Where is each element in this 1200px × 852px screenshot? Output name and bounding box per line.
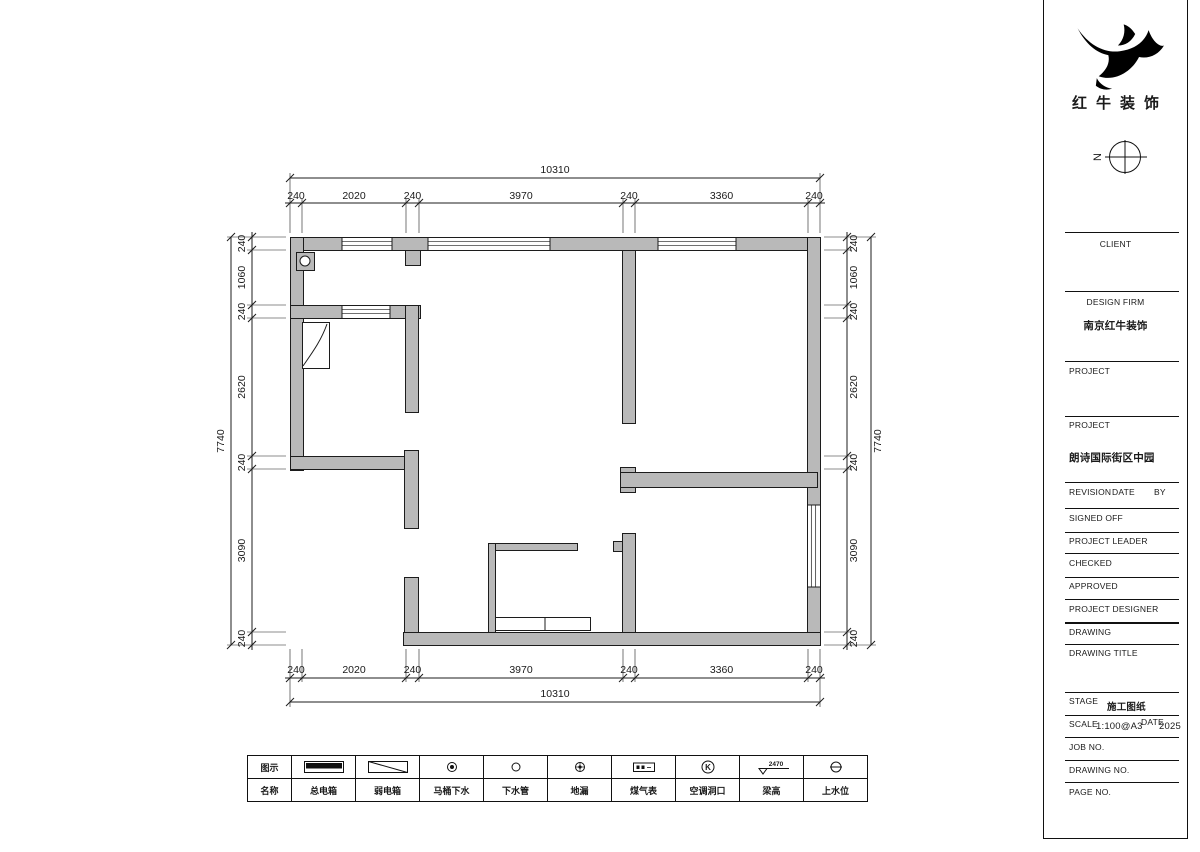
dimension-label: 240 [805,664,823,676]
legend-name-row: 名称 总电箱弱电箱马桶下水下水管地漏煤气表空调洞口梁高上水位 [248,779,867,801]
dimension-label: 240 [287,664,305,676]
legend-header-name: 名称 [248,779,291,801]
dimension-label: 2620 [848,375,860,399]
client-label: CLIENT [1044,239,1187,249]
dimension-label: 240 [848,303,860,321]
dimension-label: 240 [236,235,248,253]
signed-off-label: SIGNED OFF [1069,513,1123,523]
dimension-label: 240 [404,190,422,202]
dimension-label: 240 [848,454,860,472]
project-leader-label: PROJECT LEADER [1069,536,1148,546]
wall [405,451,419,529]
legend-symbol-beam-height-icon: 2470 [739,756,803,779]
window [342,306,390,319]
tb-divider [1065,416,1179,417]
tb-divider [1065,553,1179,554]
dimension-label: 3970 [509,190,533,202]
wall [623,534,636,633]
scale-value: 1:100@A3 [1096,721,1143,732]
dimension-label: 240 [848,235,860,253]
by-label: BY [1154,487,1166,497]
partition-wall [489,544,496,633]
drawing-title-label: DRAWING TITLE [1069,648,1138,658]
dimension-label: 2620 [236,375,248,399]
dimension-label: 3360 [710,190,734,202]
dimension-label: 3090 [848,539,860,563]
drawing-label: DRAWING [1069,627,1111,637]
dimension-label: 240 [236,454,248,472]
svg-text:2470: 2470 [768,761,783,768]
legend-name-floor-drain: 地漏 [547,779,611,801]
dimension-label: 240 [287,190,305,202]
dimension-label: 240 [620,190,638,202]
wall [406,251,421,266]
dimension-label: 7740 [872,429,884,453]
wall [404,633,821,646]
dimension-label: 1060 [236,266,248,290]
wall [406,306,419,413]
revision-label: REVISION [1069,487,1111,497]
wall [623,251,636,424]
tb-divider [1065,532,1179,533]
partition-wall [489,544,578,551]
tb-divider [1065,782,1179,783]
dimension-label: 10310 [540,164,569,176]
design-firm-value: 南京红牛装饰 [1044,318,1187,333]
legend-symbol-low-voltage-box-icon [355,756,419,779]
tb-divider [1065,508,1179,509]
dimension-label: 3360 [710,664,734,676]
legend-symbol-gas-meter-icon [611,756,675,779]
legend-name-beam-height: 梁高 [739,779,803,801]
tb-divider [1065,692,1179,693]
bull-logo-icon [1068,22,1164,92]
legend-table: 图示 K2470 名称 总电箱弱电箱马桶下水下水管地漏煤气表空调洞口梁高上水位 [247,755,868,802]
legend-name-main-power-box: 总电箱 [291,779,355,801]
brand-name: 红牛装饰 [1044,92,1187,113]
north-label: N [1092,153,1104,161]
project-label-1: PROJECT [1069,366,1110,376]
dimension-label: 240 [805,190,823,202]
dimension-label: 240 [236,303,248,321]
approved-label: APPROVED [1069,581,1118,591]
job-no-label: JOB NO. [1069,742,1104,752]
tb-divider [1065,482,1179,483]
legend-name-ac-opening: 空调洞口 [675,779,739,801]
page-no-label: PAGE NO. [1069,787,1111,797]
dimension-label: 3970 [509,664,533,676]
legend-symbol-main-power-box-icon [291,756,355,779]
flue-circle [300,256,310,266]
legend-name-gas-meter: 煤气表 [611,779,675,801]
tb-divider [1065,737,1179,738]
window [658,238,736,251]
date-label: DATE [1112,487,1135,497]
dimension-label: 3090 [236,539,248,563]
counter [496,618,591,631]
legend-symbol-floor-drain-icon [547,756,611,779]
wall [614,542,623,552]
stage-value: 施工图纸 [1107,699,1146,713]
legend-symbol-water-supply-level-icon [803,756,867,779]
wall [621,473,818,488]
legend-name-low-voltage-box: 弱电箱 [355,779,419,801]
tb-divider [1065,232,1179,233]
drawing-sheet: 2402020240397024033602401031024020202403… [0,0,1200,852]
tb-divider [1065,715,1179,716]
tb-divider [1065,577,1179,578]
date-value: 2025 [1159,721,1181,732]
dimension-label: 240 [236,630,248,648]
legend-symbol-drain-pipe-icon [483,756,547,779]
legend-symbol-ac-opening-icon: K [675,756,739,779]
legend-name-toilet-drain: 马桶下水 [419,779,483,801]
dimension-label: 240 [848,630,860,648]
tb-divider [1065,622,1179,624]
dimension-label: 10310 [540,688,569,700]
window [342,238,392,251]
svg-text:K: K [705,763,711,772]
design-firm-label: DESIGN FIRM [1044,297,1187,307]
dimension-label: 2020 [342,664,366,676]
project-value: 朗诗国际街区中园 [1069,450,1155,465]
dimension-label: 2020 [342,190,366,202]
scale-label: SCALE [1069,719,1098,729]
tb-divider [1065,599,1179,600]
legend-name-water-supply-level: 上水位 [803,779,867,801]
legend-name-drain-pipe: 下水管 [483,779,547,801]
tb-divider [1065,644,1179,645]
dimension-label: 7740 [215,429,227,453]
dimension-label: 240 [404,664,422,676]
floor-plan-canvas: 2402020240397024033602401031024020202403… [0,0,1200,852]
wall [405,578,419,633]
legend-symbol-row: 图示 K2470 [248,756,867,779]
window [428,238,550,251]
tb-divider [1065,361,1179,362]
legend-header-symbol: 图示 [248,756,291,779]
wall [291,457,419,470]
legend-symbol-toilet-drain-icon [419,756,483,779]
stage-label: STAGE [1069,696,1098,706]
dimension-label: 240 [620,664,638,676]
north-compass-icon: N [1082,136,1162,180]
project-designer-label: PROJECT DESIGNER [1069,604,1158,614]
project-label-2: PROJECT [1069,420,1110,430]
checked-label: CHECKED [1069,558,1112,568]
title-block: 红牛装饰 N CLIENT DESIGN FIRM 南京红牛装饰 PROJECT… [1043,0,1188,839]
wall [291,238,304,471]
tb-divider [1065,760,1179,761]
window [808,505,821,587]
tb-divider [1065,291,1179,292]
drawing-no-label: DRAWING NO. [1069,765,1129,775]
dimension-label: 1060 [848,266,860,290]
